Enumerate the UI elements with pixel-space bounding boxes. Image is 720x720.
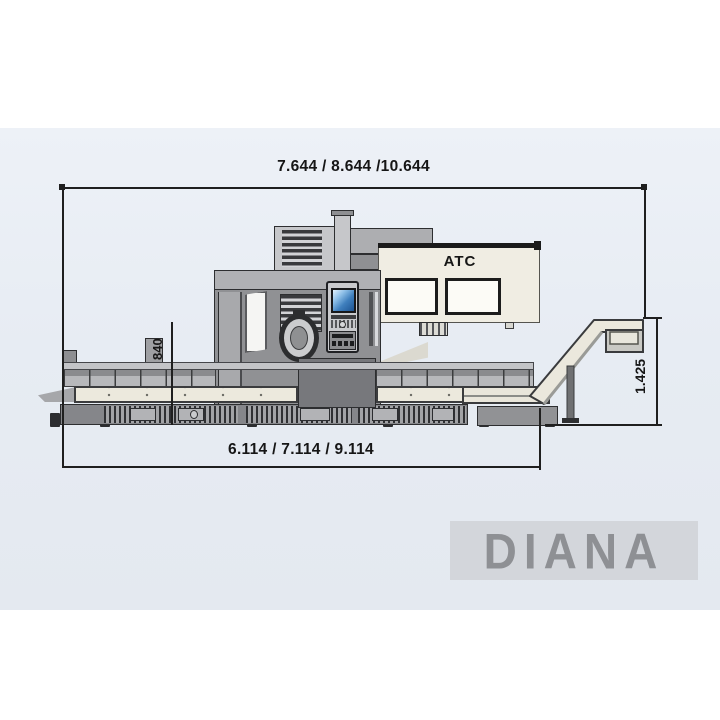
body-handle-slot bbox=[369, 292, 373, 346]
conveyor-leg-foot bbox=[562, 418, 579, 423]
right-height-label: 1.425 bbox=[632, 346, 648, 406]
pendant-screen bbox=[333, 290, 354, 311]
pendant-lower-panel bbox=[329, 331, 356, 350]
left-height-label: 840 bbox=[150, 328, 165, 370]
conveyor-discharge-window bbox=[610, 332, 638, 344]
right-height-tick-bottom bbox=[545, 424, 662, 426]
base-panel-3 bbox=[300, 408, 330, 421]
extension-line-left bbox=[62, 186, 64, 468]
bottom-dimension-label: 6.114 / 7.114 / 9.114 bbox=[62, 441, 540, 459]
right-height-dimension-line bbox=[656, 318, 658, 425]
post-cap bbox=[331, 210, 354, 216]
extension-line-right-top bbox=[644, 186, 646, 318]
base-panel-5 bbox=[432, 408, 454, 421]
brand-logo-box: DIANA bbox=[450, 521, 698, 580]
pendant-button-4 bbox=[350, 341, 354, 346]
brand-logo-text: DIANA bbox=[484, 521, 665, 579]
pendant-lower-bar bbox=[332, 334, 353, 338]
atc-top-nub bbox=[534, 241, 541, 250]
column-tower bbox=[274, 226, 336, 272]
atc-ribbed-foot bbox=[419, 322, 448, 336]
control-pendant bbox=[326, 281, 359, 353]
conveyor-leg bbox=[567, 366, 574, 421]
leveling-foot-1 bbox=[50, 413, 60, 427]
table-strip-left bbox=[74, 386, 298, 403]
way-covers-left bbox=[64, 369, 216, 387]
rotary-unit-core bbox=[290, 326, 308, 350]
atc-window-left bbox=[385, 278, 438, 315]
base-panel-4 bbox=[372, 408, 398, 421]
base-ribs-2 bbox=[246, 406, 352, 423]
machine-dimension-diagram: ATC bbox=[0, 0, 720, 720]
rotary-top-tab bbox=[293, 310, 305, 316]
tower-vent-ribs bbox=[282, 230, 322, 267]
pendant-button-1 bbox=[332, 341, 336, 346]
right-height-tick-top bbox=[643, 317, 662, 319]
top-dimension-label: 7.644 / 8.644 /10.644 bbox=[62, 158, 645, 176]
top-dimension-line bbox=[62, 187, 645, 189]
body-window bbox=[245, 291, 267, 353]
body-handle-bar bbox=[375, 292, 378, 346]
extension-line-right-bottom bbox=[539, 408, 541, 470]
left-height-dimension-line bbox=[171, 322, 173, 425]
pendant-button-3 bbox=[344, 341, 348, 346]
base-port-circle bbox=[190, 410, 198, 419]
pendant-button-2 bbox=[338, 341, 342, 346]
base-panel-1 bbox=[130, 408, 156, 421]
atc-top-bar bbox=[378, 243, 540, 248]
bottom-dimension-line bbox=[62, 466, 540, 468]
pendant-screen-frame bbox=[331, 288, 356, 313]
pendant-jog-knob bbox=[339, 321, 346, 328]
pendant-softkey-row bbox=[331, 315, 356, 319]
table-strip-right bbox=[376, 386, 466, 403]
guide-rail bbox=[62, 362, 534, 370]
atc-label: ATC bbox=[379, 253, 541, 270]
